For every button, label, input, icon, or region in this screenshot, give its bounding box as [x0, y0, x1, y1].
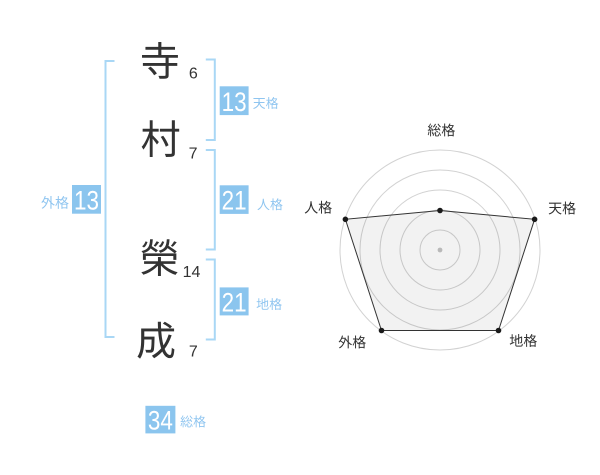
svg-text:21: 21 [222, 186, 247, 216]
svg-text:21: 21 [222, 288, 247, 318]
svg-text:7: 7 [189, 145, 198, 162]
svg-text:34: 34 [148, 406, 173, 436]
svg-text:13: 13 [74, 185, 99, 215]
svg-text:14: 14 [183, 264, 201, 281]
svg-text:13: 13 [222, 87, 247, 117]
svg-text:6: 6 [189, 66, 198, 83]
svg-text:7: 7 [189, 343, 198, 360]
